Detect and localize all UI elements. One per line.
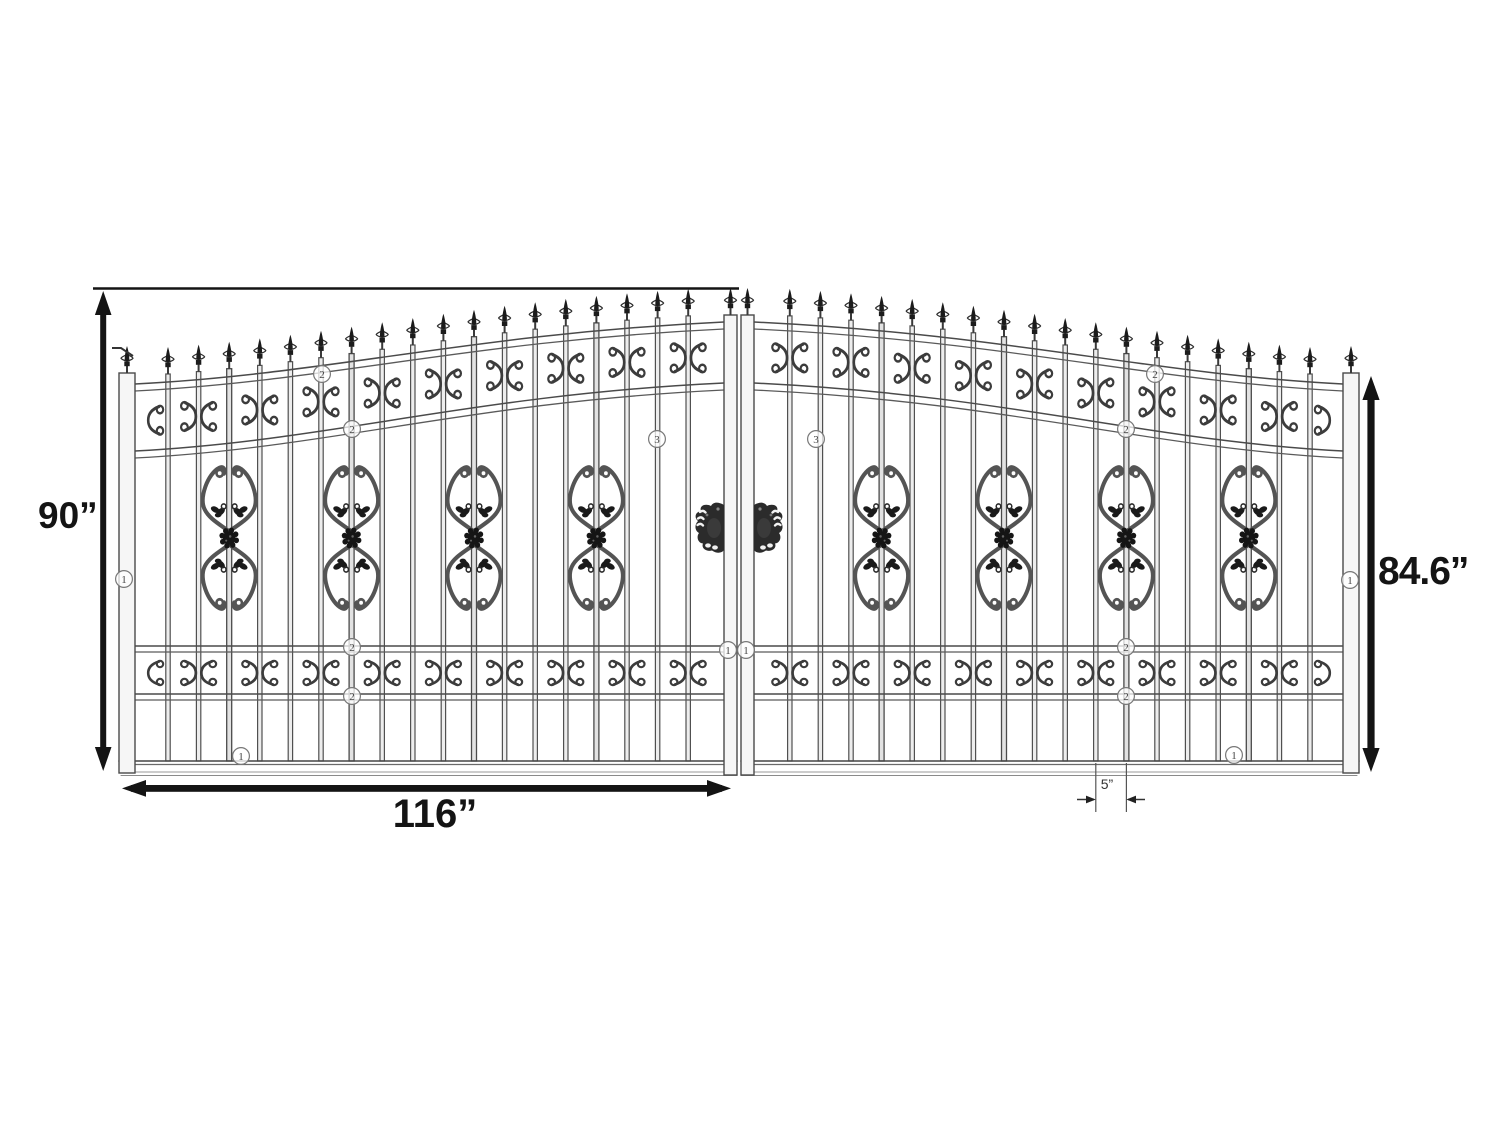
svg-text:2: 2 (349, 691, 355, 703)
svg-text:2: 2 (319, 369, 325, 381)
svg-text:2: 2 (349, 642, 355, 654)
svg-text:84.6”: 84.6” (1378, 550, 1468, 593)
svg-text:1: 1 (1231, 750, 1237, 762)
svg-text:3: 3 (654, 434, 660, 446)
svg-text:5”: 5” (1101, 776, 1114, 792)
svg-text:2: 2 (349, 424, 355, 436)
svg-text:2: 2 (1123, 691, 1129, 703)
svg-text:90”: 90” (38, 495, 98, 536)
svg-text:1: 1 (725, 645, 731, 657)
svg-text:2: 2 (1123, 424, 1129, 436)
svg-text:1: 1 (121, 574, 127, 586)
svg-text:1: 1 (1347, 575, 1353, 587)
svg-text:116”: 116” (393, 792, 478, 836)
svg-text:1: 1 (743, 645, 749, 657)
svg-text:1: 1 (238, 751, 244, 763)
svg-text:3: 3 (813, 434, 819, 446)
svg-text:2: 2 (1123, 642, 1129, 654)
svg-text:2: 2 (1152, 369, 1158, 381)
